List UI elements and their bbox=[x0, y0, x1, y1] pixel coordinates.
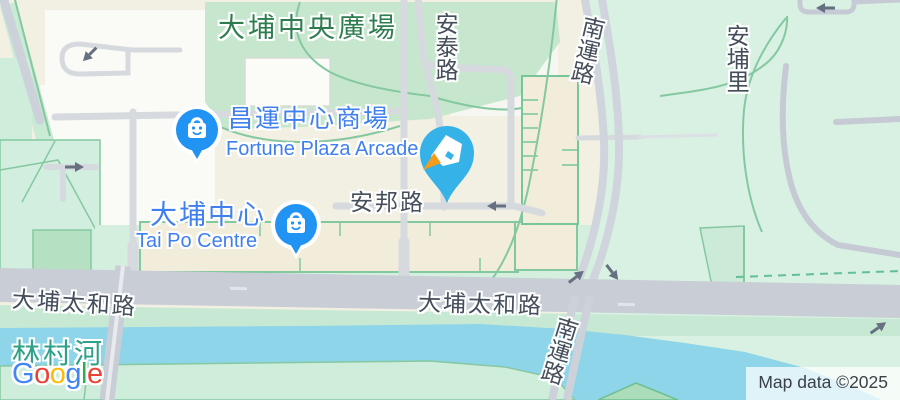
google-logo-letter: G bbox=[12, 358, 34, 390]
google-logo-letter: g bbox=[65, 358, 81, 390]
google-logo-letter: o bbox=[34, 358, 50, 390]
google-logo[interactable]: Google bbox=[12, 358, 103, 391]
fortune-plaza-marker[interactable] bbox=[172, 105, 222, 164]
map-canvas[interactable]: 大埔中央廣場 安泰路 南運路 安埔里 昌運中心商場 Fortune Plaza … bbox=[0, 0, 900, 400]
selected-place-pin[interactable] bbox=[420, 126, 474, 203]
map-marker-layer bbox=[0, 0, 900, 400]
tai-po-centre-marker[interactable] bbox=[271, 200, 321, 259]
google-logo-letter: e bbox=[87, 358, 103, 390]
map-attribution: Map data ©2025 bbox=[746, 367, 900, 400]
google-logo-letter: o bbox=[50, 358, 66, 390]
